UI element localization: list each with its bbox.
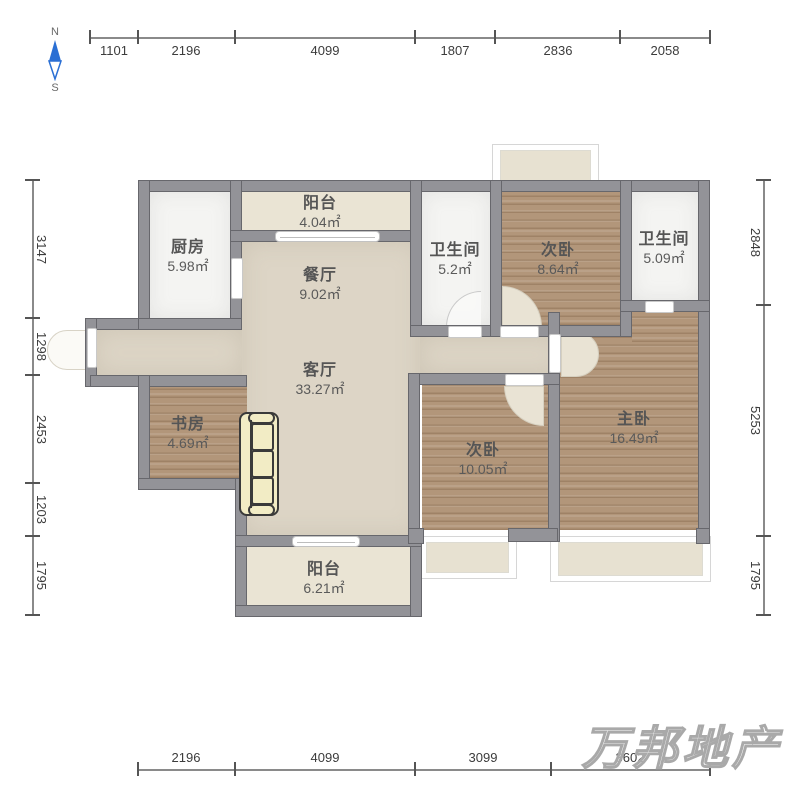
wall: [235, 605, 422, 617]
dim-top-3: 4099: [300, 43, 350, 58]
room-label-balcony-north: 阳台4.04㎡: [280, 194, 360, 232]
dim-left-3: 2453: [34, 394, 49, 464]
wall: [138, 318, 242, 330]
dimension-line-top: [90, 37, 710, 39]
tick: [756, 179, 771, 181]
sofa: [239, 412, 279, 516]
wall: [408, 373, 420, 535]
room-label-balcony-south: 阳台6.21㎡: [284, 560, 364, 598]
entry-door-arc: [47, 330, 87, 370]
wall: [90, 375, 247, 387]
sofa-cushion: [251, 423, 274, 451]
dim-top-4: 1807: [430, 43, 480, 58]
dim-bottom-2: 4099: [300, 750, 350, 765]
wall: [696, 528, 710, 544]
wall: [508, 528, 558, 542]
sofa-cushion: [251, 477, 274, 505]
room-label-dining: 餐厅9.02㎡: [280, 266, 360, 304]
compass-north-label: N: [42, 26, 68, 38]
tick: [414, 30, 416, 44]
dim-bottom-3: 3099: [458, 750, 508, 765]
bay-window-pane: [558, 542, 703, 576]
bay-window-bottom-right: [550, 536, 711, 582]
tick: [137, 762, 139, 776]
tick: [25, 614, 40, 616]
room-label-bedroom3: 次卧10.05㎡: [443, 441, 523, 479]
tick: [25, 179, 40, 181]
tick: [550, 762, 552, 776]
tick: [137, 30, 139, 44]
room-label-bathroom2: 卫生间5.09㎡: [624, 230, 704, 268]
dim-bottom-1: 2196: [161, 750, 211, 765]
bedroom3-door: [505, 374, 544, 386]
bedroom2-door: [500, 326, 539, 338]
room-label-study: 书房4.69㎡: [148, 415, 228, 453]
bay-window-pane: [426, 542, 509, 573]
tick: [756, 304, 771, 306]
room-label-kitchen: 厨房5.98㎡: [148, 238, 228, 276]
master-bedroom-floor-upper: [632, 312, 698, 342]
compass-south-label: S: [42, 82, 68, 94]
tick: [89, 30, 91, 44]
tick: [619, 30, 621, 44]
tick: [234, 762, 236, 776]
tick: [756, 535, 771, 537]
bathroom2-door: [645, 301, 674, 313]
dim-top-1: 1101: [89, 43, 139, 58]
wall: [410, 535, 422, 617]
tick: [494, 30, 496, 44]
dim-left-1: 3147: [34, 214, 49, 284]
room-label-bathroom1: 卫生间5.2㎡: [415, 241, 495, 279]
bathroom1-door: [448, 326, 482, 338]
floor-plan: 厨房5.98㎡ 阳台4.04㎡ 餐厅9.02㎡ 卫生间5.2㎡ 次卧8.64㎡ …: [0, 0, 800, 800]
dim-left-4: 1203: [34, 474, 49, 544]
tick: [756, 614, 771, 616]
dim-right-3: 1795: [748, 540, 763, 610]
dim-left-2: 1298: [34, 311, 49, 381]
entry-hall-floor: [95, 330, 242, 375]
master-door: [549, 334, 561, 373]
tick: [234, 30, 236, 44]
dim-top-6: 2058: [640, 43, 690, 58]
sofa-armrest: [248, 504, 275, 516]
dim-top-2: 2196: [161, 43, 211, 58]
sofa-cushion: [251, 450, 274, 478]
wall: [138, 478, 247, 490]
compass: N S: [42, 26, 68, 94]
room-label-bedroom2: 次卧8.64㎡: [518, 241, 598, 279]
dim-top-5: 2836: [533, 43, 583, 58]
watermark: 万邦地产: [582, 712, 782, 778]
wall: [408, 528, 424, 544]
kitchen-door: [231, 258, 243, 299]
wall: [230, 180, 242, 330]
balcony-south-window: [292, 536, 360, 547]
room-label-living: 客厅33.27㎡: [278, 361, 362, 399]
balcony-north-window: [275, 231, 380, 242]
corridor-floor: [420, 337, 560, 373]
tick: [709, 30, 711, 44]
entry-door: [87, 328, 97, 368]
dimension-line-right: [763, 180, 765, 615]
dim-right-2: 5253: [748, 385, 763, 455]
dim-left-5: 1795: [34, 540, 49, 610]
room-label-master: 主卧16.49㎡: [594, 410, 674, 448]
bay-window-pane: [500, 150, 591, 182]
dim-right-1: 2848: [748, 207, 763, 277]
bay-window-bottom-left: [418, 536, 517, 579]
tick: [414, 762, 416, 776]
compass-needle-icon: [44, 39, 66, 81]
